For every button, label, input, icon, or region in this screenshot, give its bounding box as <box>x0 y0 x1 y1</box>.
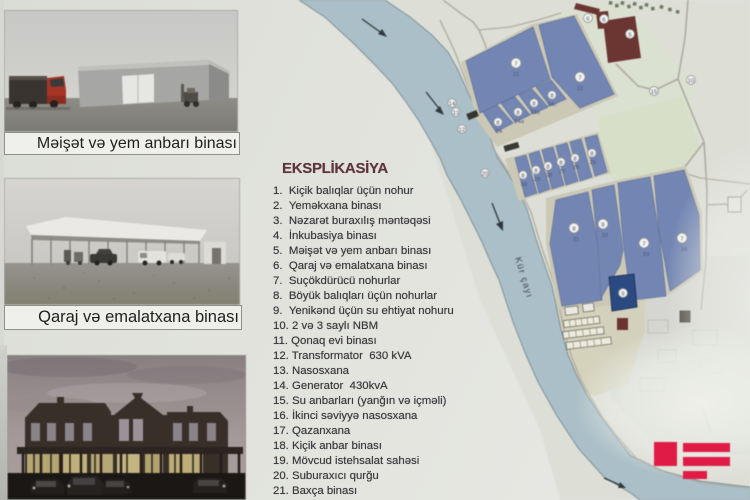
svg-text:28: 28 <box>546 173 552 179</box>
svg-text:22: 22 <box>577 86 583 92</box>
svg-text:6: 6 <box>602 18 605 24</box>
svg-text:7: 7 <box>578 76 581 82</box>
svg-text:32: 32 <box>602 233 608 239</box>
svg-text:8: 8 <box>573 157 576 163</box>
svg-text:14: 14 <box>449 102 456 108</box>
svg-text:8: 8 <box>572 227 575 233</box>
svg-text:24: 24 <box>496 129 503 135</box>
svg-text:7: 7 <box>642 242 645 248</box>
svg-text:5: 5 <box>628 33 631 39</box>
svg-text:7: 7 <box>514 62 517 68</box>
svg-text:24a: 24a <box>514 119 524 125</box>
svg-text:25: 25 <box>590 160 596 166</box>
svg-text:24b: 24b <box>530 110 540 116</box>
svg-text:8: 8 <box>546 165 549 171</box>
svg-text:27: 27 <box>559 169 565 175</box>
svg-text:20: 20 <box>482 172 488 178</box>
svg-text:31: 31 <box>573 237 579 243</box>
svg-text:33: 33 <box>643 252 649 258</box>
svg-text:12: 12 <box>459 128 465 134</box>
svg-text:8: 8 <box>590 152 593 158</box>
svg-text:24c: 24c <box>547 102 556 108</box>
svg-text:30: 30 <box>521 182 527 188</box>
svg-text:29: 29 <box>534 177 540 183</box>
svg-text:10: 10 <box>688 79 694 85</box>
svg-text:26: 26 <box>573 165 579 171</box>
svg-text:13: 13 <box>453 111 459 117</box>
svg-text:8: 8 <box>601 223 604 229</box>
svg-text:9: 9 <box>621 292 624 298</box>
svg-text:21: 21 <box>513 72 519 78</box>
svg-text:8: 8 <box>521 174 524 180</box>
svg-text:8: 8 <box>559 161 562 167</box>
svg-text:8: 8 <box>496 121 499 127</box>
svg-text:8: 8 <box>516 111 519 117</box>
svg-text:8: 8 <box>550 94 553 100</box>
svg-text:15: 15 <box>651 90 657 96</box>
svg-text:8: 8 <box>532 102 535 108</box>
svg-text:6: 6 <box>586 17 589 23</box>
svg-text:8: 8 <box>534 169 537 175</box>
